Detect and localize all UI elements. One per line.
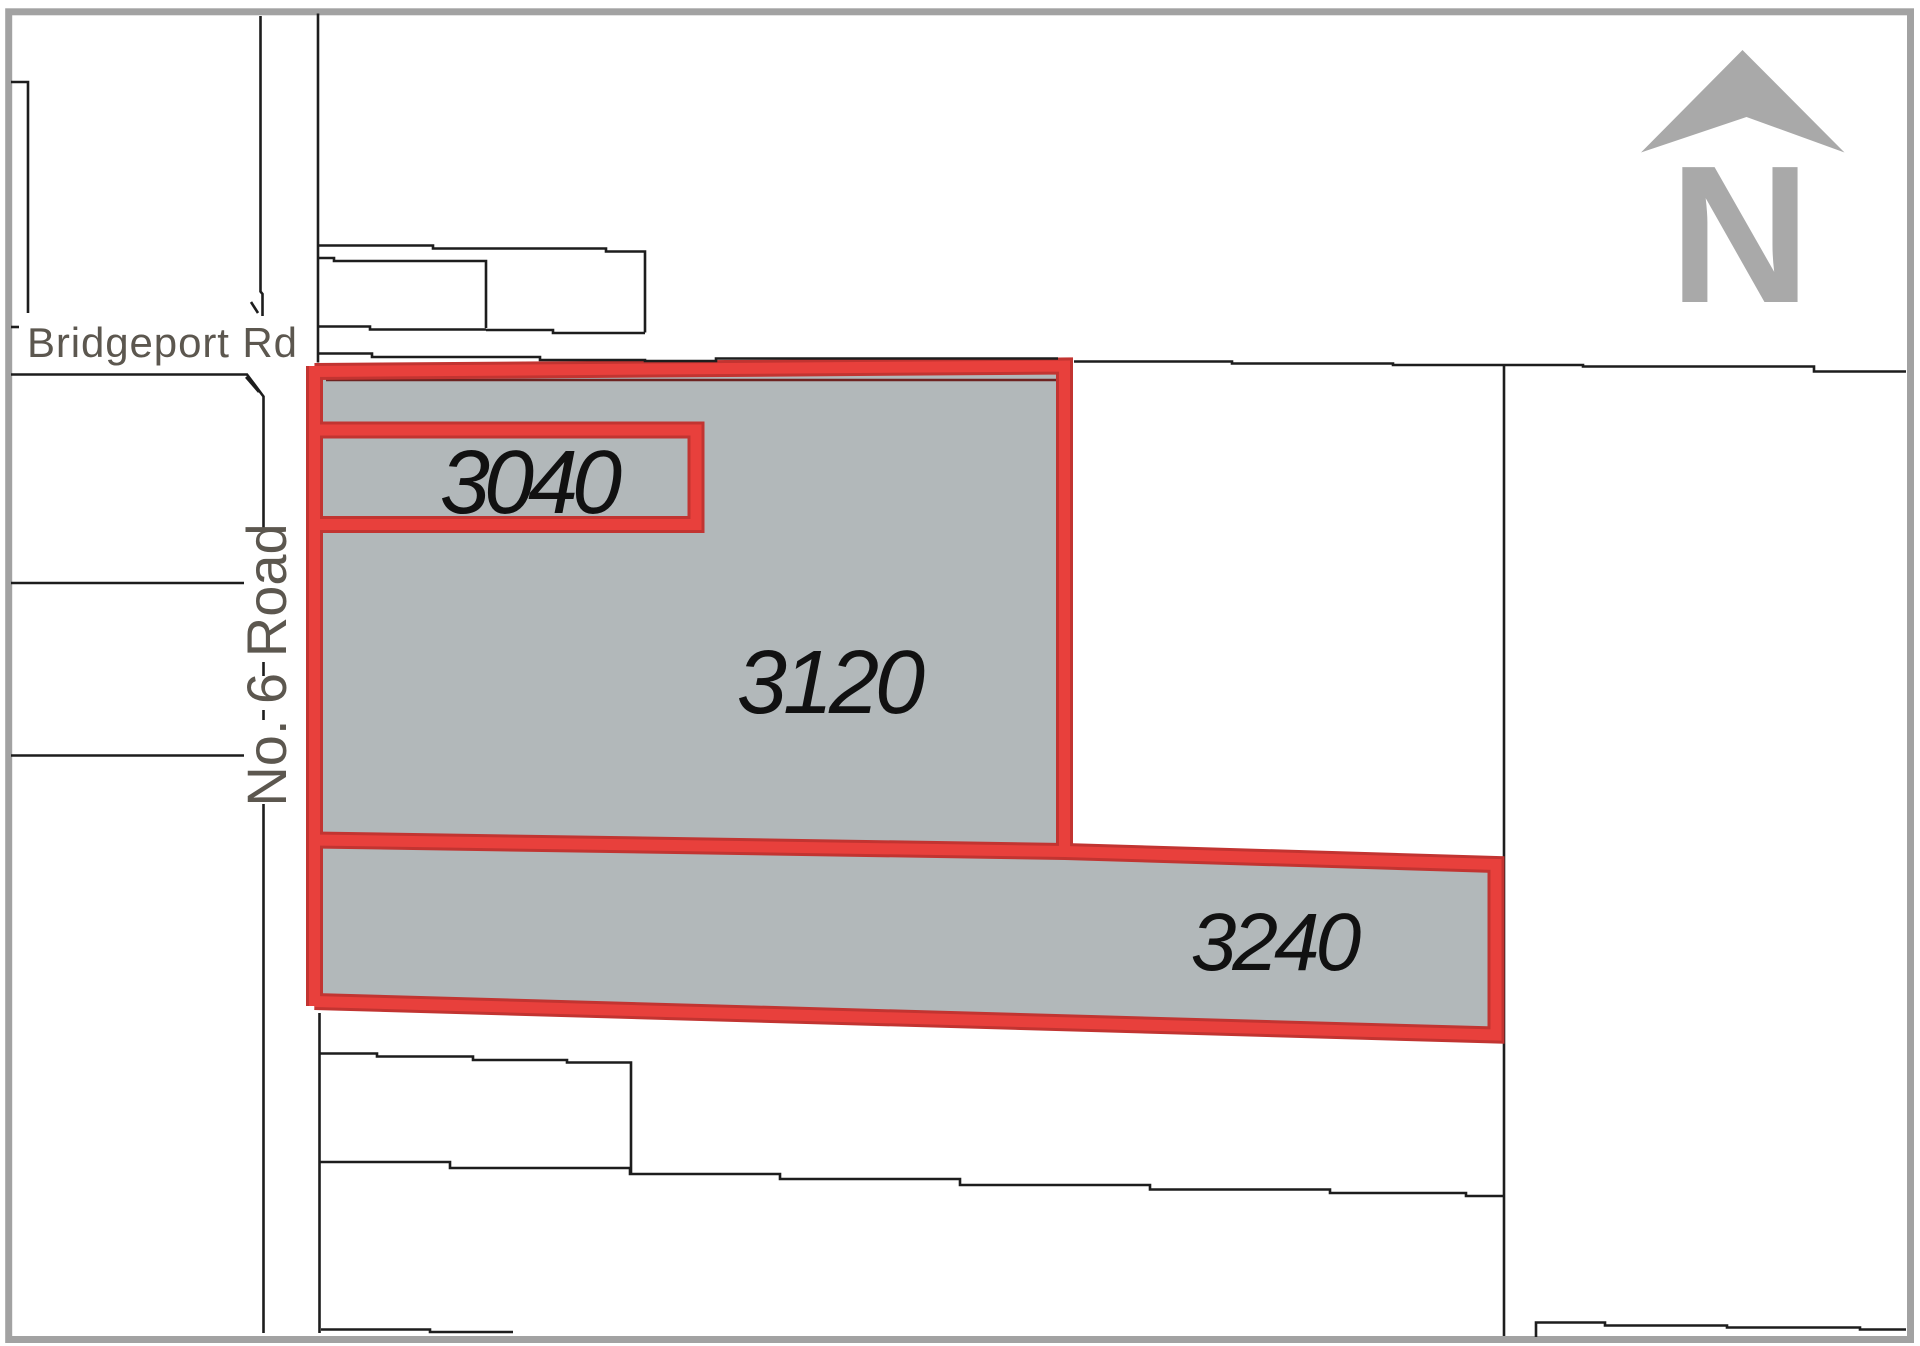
svg-text:Bridgeport Rd: Bridgeport Rd	[27, 319, 298, 366]
svg-text:3240: 3240	[1191, 897, 1361, 988]
svg-text:3040: 3040	[440, 433, 622, 533]
svg-text:N: N	[1669, 125, 1811, 344]
svg-text:3120: 3120	[737, 633, 925, 733]
svg-text:No. 6 Road: No. 6 Road	[235, 523, 298, 806]
